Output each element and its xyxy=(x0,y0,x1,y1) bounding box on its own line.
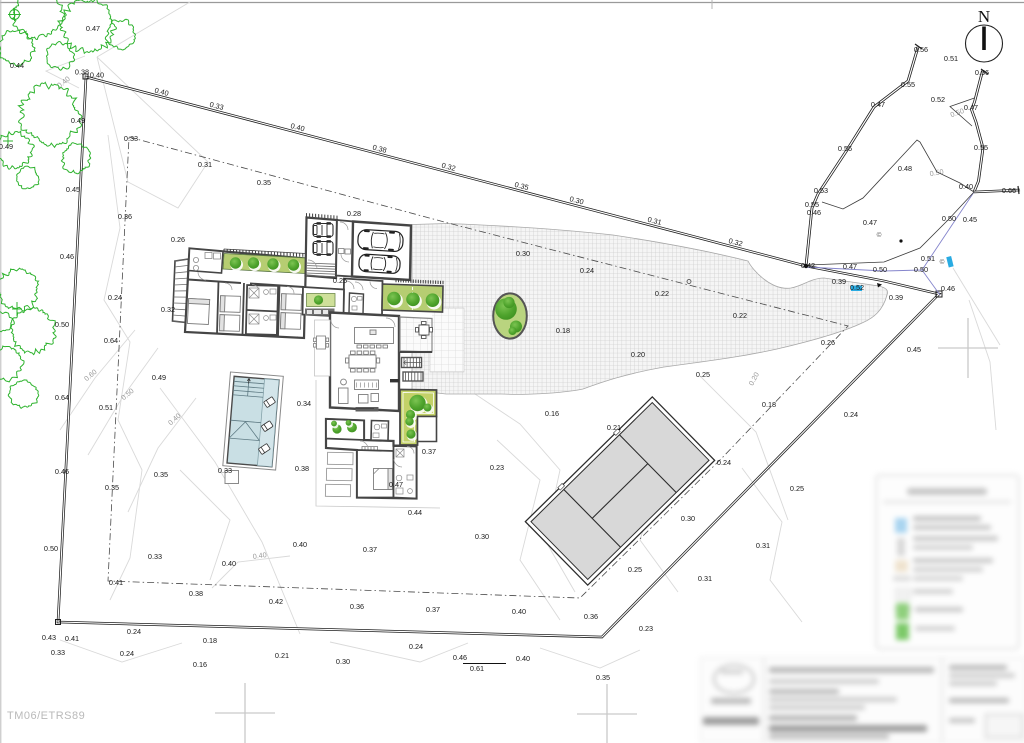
svg-text:0.20: 0.20 xyxy=(631,350,645,359)
svg-text:0.40: 0.40 xyxy=(516,654,530,663)
svg-text:0.48: 0.48 xyxy=(898,164,912,173)
svg-text:0.52: 0.52 xyxy=(850,283,864,292)
svg-text:0.35: 0.35 xyxy=(596,673,610,682)
svg-text:0.46: 0.46 xyxy=(453,653,467,662)
svg-text:0.53: 0.53 xyxy=(814,186,828,195)
svg-text:0.51: 0.51 xyxy=(99,403,113,412)
svg-text:0.47: 0.47 xyxy=(863,218,877,227)
svg-text:0.56: 0.56 xyxy=(838,144,852,153)
svg-text:0.64: 0.64 xyxy=(104,336,118,345)
svg-text:©: © xyxy=(877,231,882,239)
svg-text:0.36: 0.36 xyxy=(350,602,364,611)
svg-text:0.24: 0.24 xyxy=(409,642,423,651)
svg-text:0.42: 0.42 xyxy=(801,261,815,270)
svg-text:0.34: 0.34 xyxy=(297,399,311,408)
svg-text:0.41: 0.41 xyxy=(65,634,79,643)
svg-text:0.56: 0.56 xyxy=(975,68,989,77)
svg-text:0.40: 0.40 xyxy=(222,559,236,568)
svg-text:0.25: 0.25 xyxy=(333,276,347,285)
svg-text:0.30: 0.30 xyxy=(475,532,489,541)
svg-text:0.40: 0.40 xyxy=(293,540,307,549)
svg-text:0.31: 0.31 xyxy=(756,541,770,550)
svg-text:0.55: 0.55 xyxy=(974,143,988,152)
svg-text:0.25: 0.25 xyxy=(628,565,642,574)
svg-text:0.32: 0.32 xyxy=(161,305,175,314)
svg-text:0.50: 0.50 xyxy=(914,265,928,274)
svg-text:0.64: 0.64 xyxy=(55,393,69,402)
svg-text:0.47: 0.47 xyxy=(843,262,857,271)
svg-text:0.50: 0.50 xyxy=(873,265,887,274)
svg-text:0.35: 0.35 xyxy=(105,483,119,492)
svg-text:0.44: 0.44 xyxy=(10,61,24,70)
svg-text:0.21: 0.21 xyxy=(275,651,289,660)
svg-text:0.60: 0.60 xyxy=(82,367,99,383)
svg-text:0.24: 0.24 xyxy=(844,410,858,419)
svg-text:0.50: 0.50 xyxy=(942,214,956,223)
svg-text:0.46: 0.46 xyxy=(807,208,821,217)
svg-text:©: © xyxy=(940,258,945,266)
svg-text:0.39: 0.39 xyxy=(832,277,846,286)
svg-text:0.33: 0.33 xyxy=(51,648,65,657)
svg-text:0.31: 0.31 xyxy=(698,574,712,583)
svg-text:0.33: 0.33 xyxy=(124,134,138,143)
svg-text:0.31: 0.31 xyxy=(198,160,212,169)
svg-text:0.45: 0.45 xyxy=(907,345,921,354)
svg-text:0.56: 0.56 xyxy=(914,45,928,54)
svg-text:0.33: 0.33 xyxy=(148,552,162,561)
svg-text:N: N xyxy=(978,7,990,26)
svg-text:0.26: 0.26 xyxy=(821,338,835,347)
svg-text:0.28: 0.28 xyxy=(347,209,361,218)
svg-text:0.40: 0.40 xyxy=(166,411,182,427)
svg-text:0.35: 0.35 xyxy=(257,178,271,187)
svg-text:0.51: 0.51 xyxy=(944,54,958,63)
svg-text:0.44: 0.44 xyxy=(408,508,422,517)
svg-text:0.47: 0.47 xyxy=(964,103,978,112)
svg-text:0.52: 0.52 xyxy=(931,95,945,104)
svg-text:0.40: 0.40 xyxy=(512,607,526,616)
svg-text:0.39: 0.39 xyxy=(889,293,903,302)
svg-text:0.35: 0.35 xyxy=(154,470,168,479)
svg-text:0.55: 0.55 xyxy=(901,80,915,89)
svg-text:0.49: 0.49 xyxy=(0,142,13,151)
svg-text:0.38: 0.38 xyxy=(189,589,203,598)
svg-text:0.45: 0.45 xyxy=(963,215,977,224)
svg-text:0.20: 0.20 xyxy=(747,371,762,388)
svg-text:0.30: 0.30 xyxy=(516,249,530,258)
svg-text:0.50: 0.50 xyxy=(44,544,58,553)
svg-text:0.47: 0.47 xyxy=(86,24,100,33)
svg-text:0.38: 0.38 xyxy=(295,464,309,473)
svg-text:0.26: 0.26 xyxy=(171,235,185,244)
svg-text:0.41: 0.41 xyxy=(109,578,123,587)
svg-text:0.49: 0.49 xyxy=(71,116,85,125)
svg-text:0.30: 0.30 xyxy=(681,514,695,523)
svg-text:0.40: 0.40 xyxy=(90,71,104,80)
svg-text:0.46: 0.46 xyxy=(60,252,74,261)
svg-text:0.23: 0.23 xyxy=(639,624,653,633)
svg-text:0.18: 0.18 xyxy=(203,636,217,645)
svg-text:0.40: 0.40 xyxy=(959,182,973,191)
svg-text:0.16: 0.16 xyxy=(193,660,207,669)
svg-text:0.23: 0.23 xyxy=(490,463,504,472)
svg-text:0.24: 0.24 xyxy=(127,627,141,636)
svg-text:0.18: 0.18 xyxy=(762,400,776,409)
svg-text:0.33: 0.33 xyxy=(218,466,232,475)
svg-text:0.24: 0.24 xyxy=(717,458,731,467)
svg-text:0.50: 0.50 xyxy=(55,320,69,329)
svg-text:0.25: 0.25 xyxy=(790,484,804,493)
svg-text:0.49: 0.49 xyxy=(152,373,166,382)
svg-text:0.61: 0.61 xyxy=(470,664,484,673)
svg-text:0.37: 0.37 xyxy=(363,545,377,554)
svg-text:0.38: 0.38 xyxy=(75,68,89,77)
svg-text:0.22: 0.22 xyxy=(733,311,747,320)
svg-text:0.25: 0.25 xyxy=(696,370,710,379)
svg-text:0.47: 0.47 xyxy=(871,100,885,109)
svg-text:0.45: 0.45 xyxy=(66,185,80,194)
svg-text:0.24: 0.24 xyxy=(580,266,594,275)
svg-text:0.16: 0.16 xyxy=(545,409,559,418)
svg-text:0.36: 0.36 xyxy=(584,612,598,621)
svg-text:0.50: 0.50 xyxy=(929,167,944,178)
svg-text:0.24: 0.24 xyxy=(108,293,122,302)
svg-text:0.46: 0.46 xyxy=(55,467,69,476)
svg-text:0.37: 0.37 xyxy=(422,447,436,456)
svg-text:0.30: 0.30 xyxy=(336,657,350,666)
svg-text:0.47: 0.47 xyxy=(389,480,403,489)
svg-text:0.50: 0.50 xyxy=(119,386,136,402)
svg-text:0.42: 0.42 xyxy=(269,597,283,606)
svg-text:0.22: 0.22 xyxy=(655,289,669,298)
svg-text:0.18: 0.18 xyxy=(556,326,570,335)
svg-text:0.51: 0.51 xyxy=(921,254,935,263)
svg-text:0.36: 0.36 xyxy=(118,212,132,221)
svg-text:0.66: 0.66 xyxy=(1002,186,1016,195)
svg-text:0.43: 0.43 xyxy=(42,633,56,642)
svg-text:0.37: 0.37 xyxy=(426,605,440,614)
svg-text:0.21: 0.21 xyxy=(607,423,621,432)
svg-text:0.46: 0.46 xyxy=(941,284,955,293)
svg-text:0.24: 0.24 xyxy=(120,649,134,658)
